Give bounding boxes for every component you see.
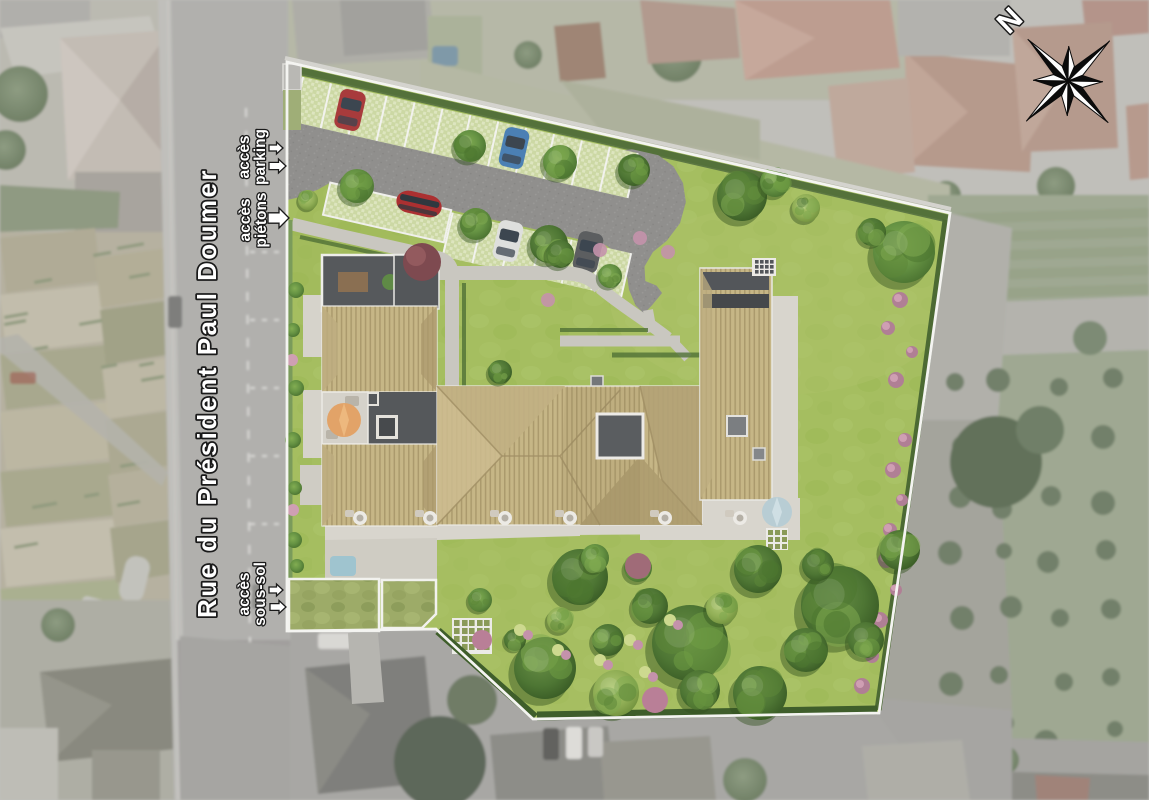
svg-text:Rue du Président Paul Doumer: Rue du Président Paul Doumer	[192, 168, 222, 618]
svg-text:parking: parking	[252, 129, 269, 185]
svg-text:accès: accès	[237, 198, 254, 241]
svg-text:sous-sol: sous-sol	[252, 562, 269, 626]
svg-text:accès: accès	[236, 135, 253, 178]
svg-text:accès: accès	[236, 572, 253, 615]
